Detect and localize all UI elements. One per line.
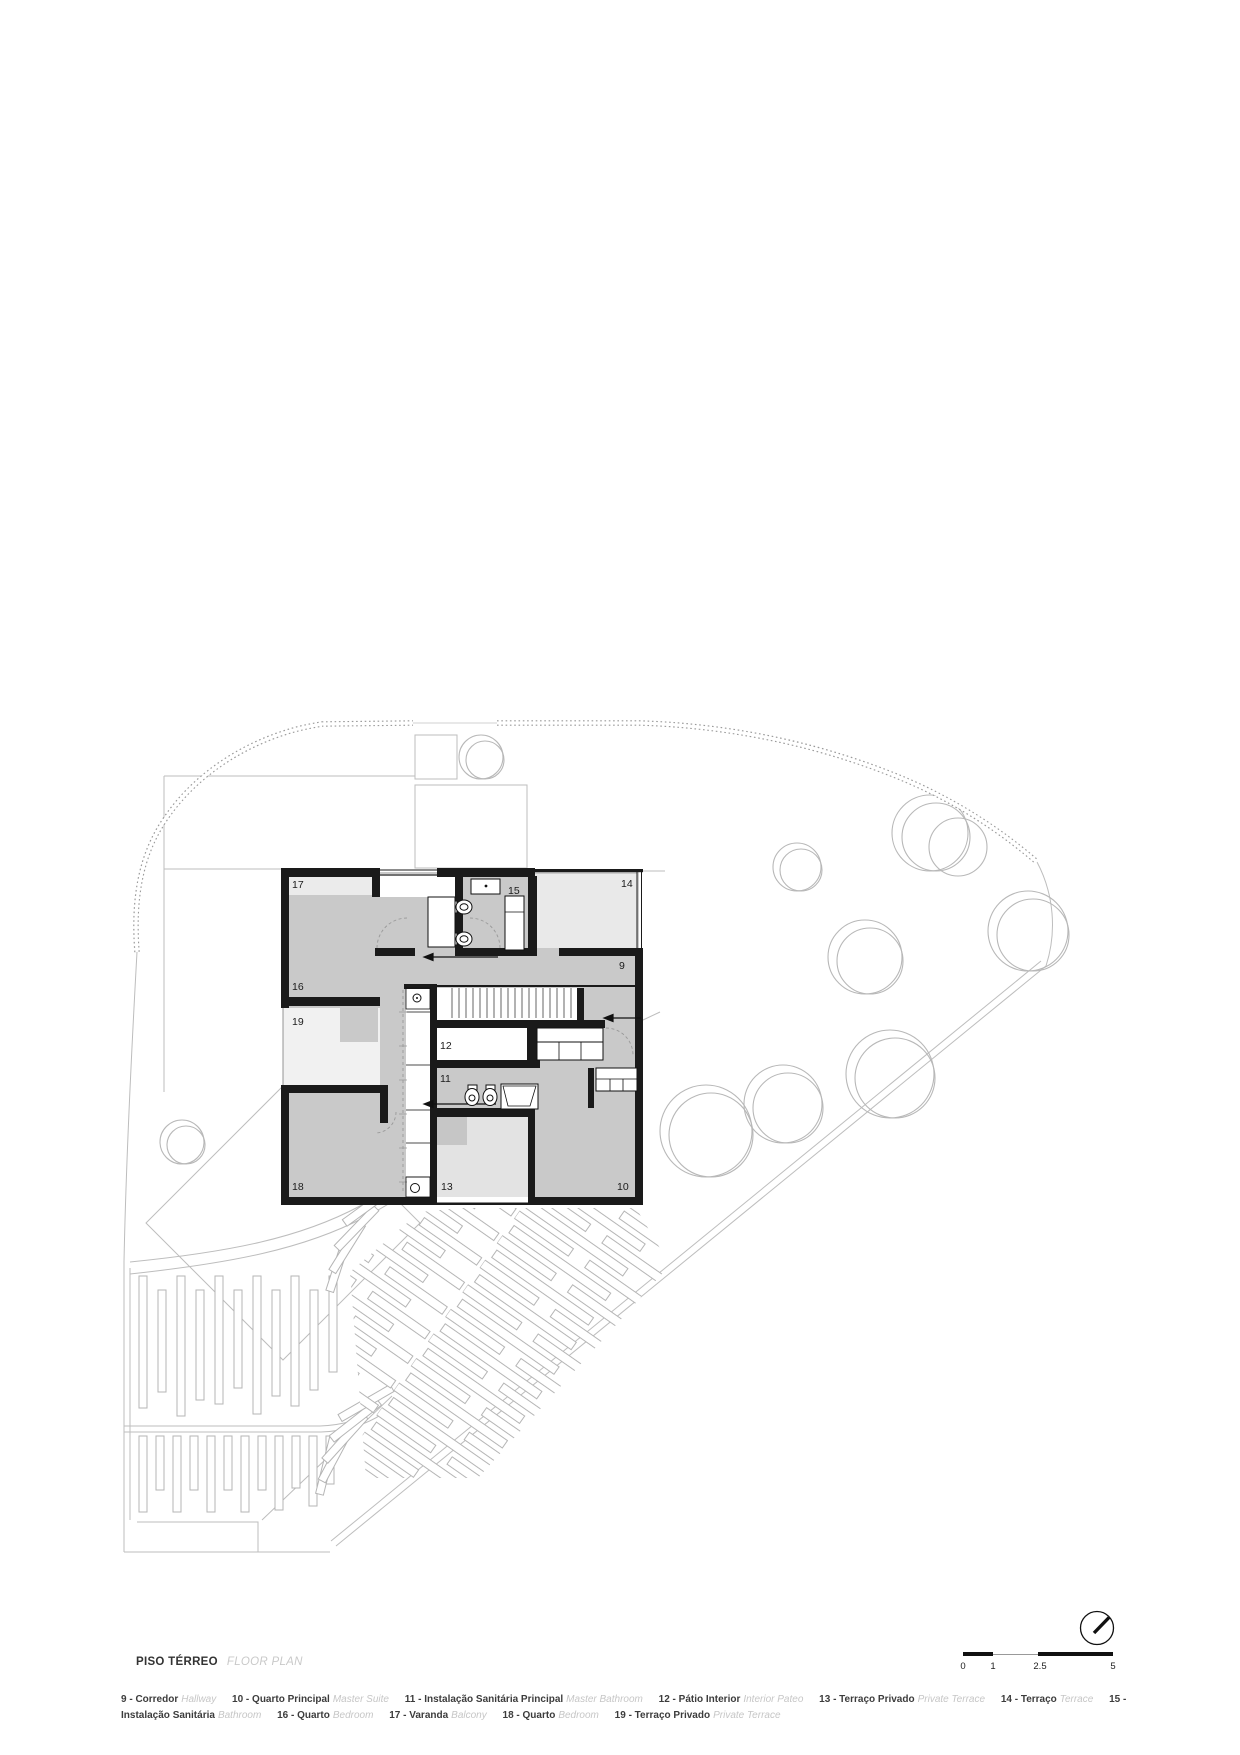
page-title-en: FLOOR PLAN [227, 1656, 303, 1668]
tree [459, 735, 504, 779]
entry-court-small [415, 735, 457, 779]
counter [596, 1068, 637, 1091]
legend-item: 13 - Terraço PrivadoPrivate Terrace [819, 1694, 985, 1705]
room-label-15: 15 [508, 885, 520, 897]
legend-item: 16 - QuartoBedroom [277, 1710, 373, 1721]
scale-tick-0: 0 [952, 1661, 974, 1672]
stairs-area [437, 988, 577, 1020]
tree [160, 1120, 205, 1164]
page-title: PISO TÉRREO [136, 1656, 218, 1668]
tree [828, 920, 903, 994]
scale-segment-thin [993, 1654, 1038, 1655]
scale-tick-2.5: 2.5 [1029, 1661, 1051, 1672]
room-label-13: 13 [441, 1181, 453, 1193]
tree [660, 1085, 753, 1177]
room-label-16: 16 [292, 981, 304, 993]
closet-spine [406, 988, 430, 1197]
legend-item: 9 - CorredorHallway [121, 1694, 216, 1705]
wardrobe-shelf [537, 1028, 603, 1042]
room-label-11: 11 [440, 1073, 451, 1085]
room-label-18: 18 [292, 1181, 304, 1193]
room-label-9: 9 [619, 960, 625, 972]
tree [846, 1030, 935, 1118]
title-block: PISO TÉRREOFLOOR PLAN [136, 1652, 303, 1670]
legend-item: 10 - Quarto PrincipalMaster Suite [232, 1694, 389, 1705]
wardrobe [428, 897, 455, 947]
deck-diagonal-field [350, 1208, 670, 1478]
small-wc [411, 1184, 420, 1193]
scale-segment [1038, 1652, 1113, 1656]
legend-item: 11 - Instalação Sanitária PrincipalMaste… [405, 1694, 643, 1705]
tree [744, 1065, 823, 1143]
room-label-19: 19 [292, 1016, 304, 1028]
room-legend: 9 - CorredorHallway 10 - Quarto Principa… [121, 1692, 1129, 1723]
tree [773, 843, 822, 891]
scale-tick-1: 1 [982, 1661, 1004, 1672]
tree [929, 818, 987, 876]
floor-plan-page: 17 15 14 16 9 19 12 11 18 13 10 PISO TÉR… [0, 0, 1240, 1755]
room-label-14: 14 [621, 878, 633, 890]
entry-court-large [415, 785, 527, 868]
building: 17 15 14 16 9 19 12 11 18 13 10 [281, 868, 643, 1205]
legend-item: 19 - Terraço PrivadoPrivate Terrace [615, 1710, 781, 1721]
tree [988, 891, 1069, 971]
legend-item: 18 - QuartoBedroom [503, 1710, 599, 1721]
legend-item: 17 - VarandaBalcony [389, 1710, 487, 1721]
scale-tick-5: 5 [1102, 1661, 1124, 1672]
legend-item: 12 - Pátio InteriorInterior Pateo [659, 1694, 804, 1705]
scale-segment [963, 1652, 993, 1656]
room-label-17: 17 [292, 879, 304, 891]
legend-item: 14 - TerraçoTerrace [1001, 1694, 1094, 1705]
room-label-10: 10 [617, 1181, 629, 1193]
room-label-12: 12 [440, 1040, 452, 1052]
site-plan-drawing: 17 15 14 16 9 19 12 11 18 13 10 [0, 0, 1240, 1755]
shower [505, 896, 524, 950]
north-arrow-icon [1075, 1606, 1119, 1650]
